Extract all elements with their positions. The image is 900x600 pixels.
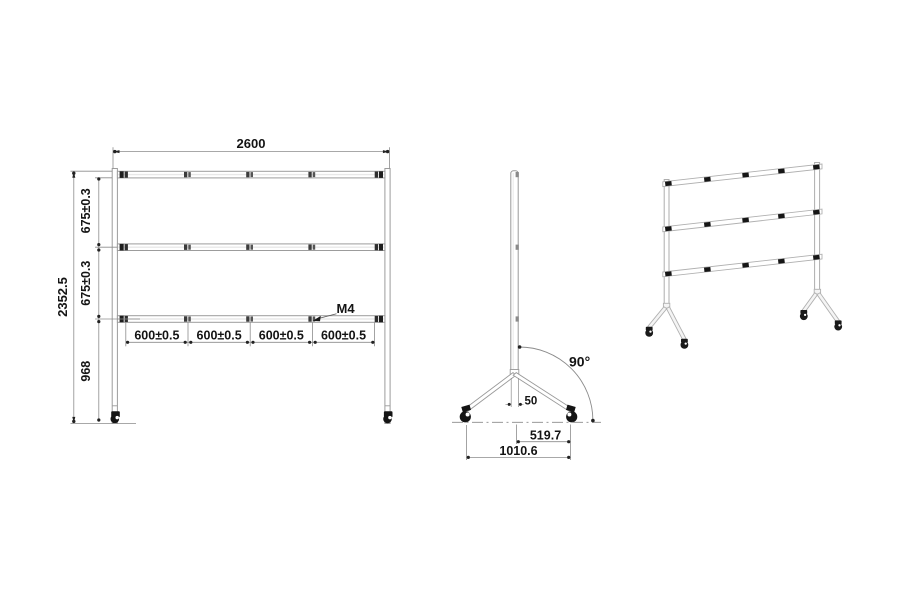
svg-text:50: 50: [525, 396, 538, 408]
svg-text:600±0.5: 600±0.5: [321, 328, 366, 342]
svg-text:1010.6: 1010.6: [499, 444, 537, 458]
svg-text:600±0.5: 600±0.5: [134, 328, 179, 342]
svg-text:675±0.3: 675±0.3: [79, 188, 93, 233]
svg-text:600±0.5: 600±0.5: [197, 328, 242, 342]
svg-text:600±0.5: 600±0.5: [259, 328, 304, 342]
svg-text:2352.5: 2352.5: [55, 277, 70, 317]
svg-text:675±0.3: 675±0.3: [79, 261, 93, 306]
svg-text:90°: 90°: [569, 354, 590, 370]
svg-text:968: 968: [79, 361, 93, 382]
svg-text:2600: 2600: [237, 136, 266, 151]
svg-text:519.7: 519.7: [530, 428, 561, 442]
svg-text:M4: M4: [337, 301, 356, 316]
